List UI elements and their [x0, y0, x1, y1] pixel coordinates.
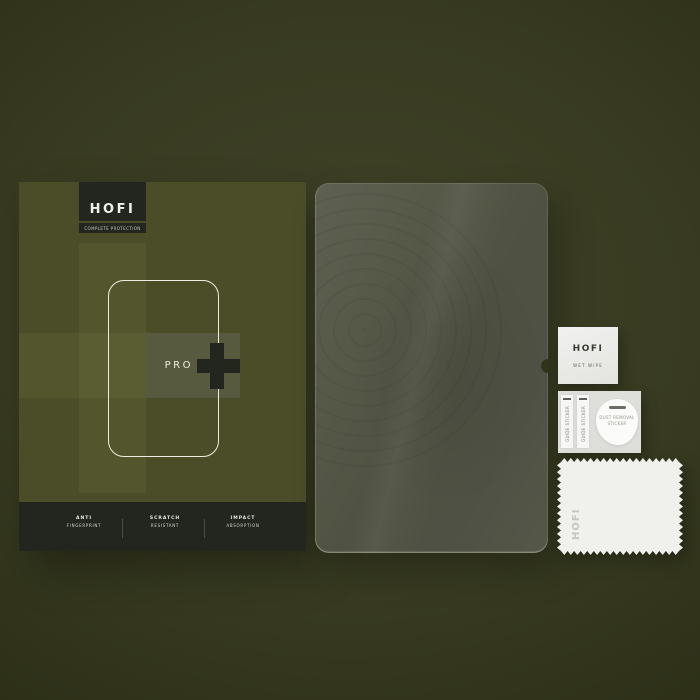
- sticker-sheet: GUIDE STICKER GUIDE STICKER DUST REMOVAL…: [558, 391, 641, 453]
- guide-sticker-strip: GUIDE STICKER: [577, 395, 589, 448]
- feature-band: ANTI FINGERPRINT SCRATCH RESISTANT IMPAC…: [19, 502, 306, 551]
- brand-tagline: COMPLETE PROTECTION: [84, 226, 140, 231]
- guide-sticker-strip: GUIDE STICKER: [561, 395, 573, 448]
- feature-scratch-resistant: SCRATCH RESISTANT: [125, 516, 205, 528]
- brand-logo: HOFI: [90, 203, 136, 216]
- sticker-dash: [563, 398, 571, 400]
- model-label: PRO: [139, 360, 193, 371]
- sticker-dash: [609, 406, 626, 409]
- microfiber-cloth: HOFI: [557, 458, 683, 555]
- product-photo-scene: HOFI COMPLETE PROTECTION PRO ANTI FINGER…: [0, 0, 700, 700]
- glass-reflection-streak: [315, 183, 548, 553]
- wet-wipe-brand: HOFI: [558, 344, 618, 354]
- product-box: HOFI COMPLETE PROTECTION PRO ANTI FINGER…: [19, 182, 306, 551]
- wet-wipe-packet: HOFI WET WIPE: [558, 327, 618, 384]
- cloth-brand: HOFI: [571, 509, 582, 540]
- feature-anti-fingerprint: ANTI FINGERPRINT: [44, 516, 124, 528]
- sticker-dash: [579, 398, 587, 400]
- brand-logo-block: HOFI: [79, 182, 146, 221]
- feature-divider: [122, 519, 123, 538]
- plus-icon: [197, 359, 240, 373]
- dust-removal-sticker: DUST REMOVAL STICKER: [596, 399, 638, 445]
- feature-impact-absorption: IMPACT ABSORPTION: [203, 516, 283, 528]
- camera-notch: [541, 359, 548, 373]
- brand-tagline-block: COMPLETE PROTECTION: [79, 223, 146, 233]
- glass-protector: [315, 183, 548, 553]
- wet-wipe-label: WET WIPE: [558, 363, 618, 368]
